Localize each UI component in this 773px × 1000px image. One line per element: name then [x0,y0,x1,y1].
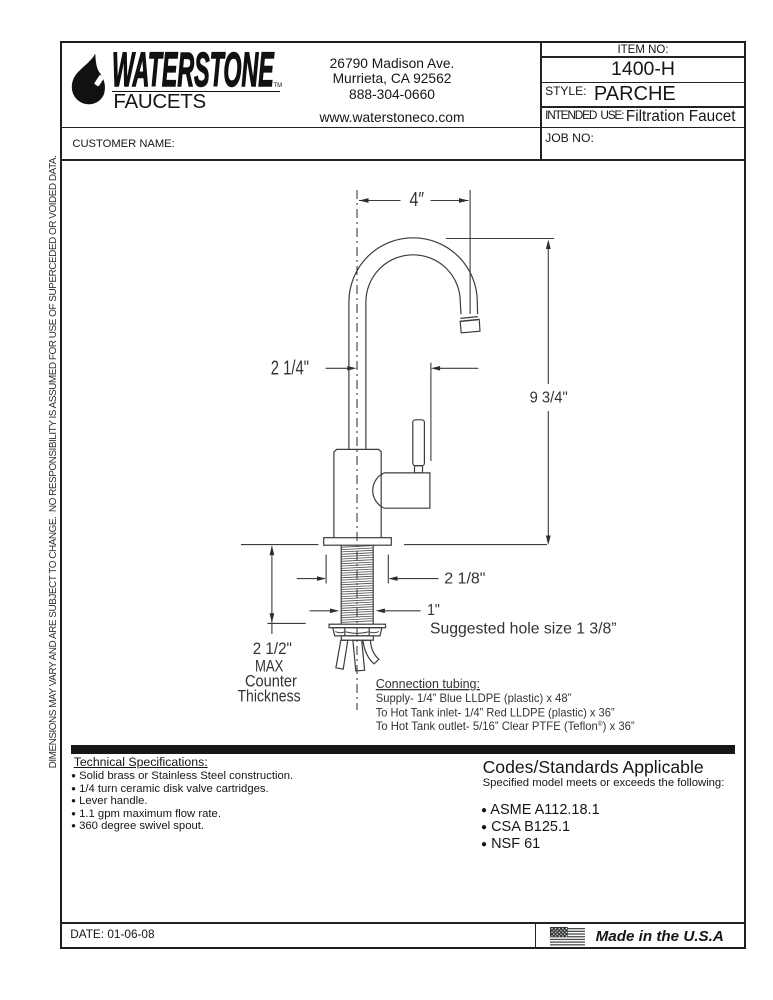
svg-text:Supply- 1/4” Blue LLDPE (plast: Supply- 1/4” Blue LLDPE (plastic) x 48” [376,691,572,705]
svg-text:4″: 4″ [410,189,425,211]
svg-text:9 3/4": 9 3/4" [530,389,568,406]
svg-text:To Hot Tank outlet- 5/16” Clea: To Hot Tank outlet- 5/16” Clear PTFE (Te… [376,719,635,733]
svg-text:2 1/4": 2 1/4" [271,357,309,379]
svg-text:To Hot Tank inlet- 1/4” Red LL: To Hot Tank inlet- 1/4” Red LLDPE (plast… [376,705,615,719]
svg-text:Connection tubing:: Connection tubing: [376,676,480,691]
svg-text:Suggested hole size 1 3/8”: Suggested hole size 1 3/8” [430,620,617,637]
svg-text:1": 1" [427,602,440,619]
svg-text:Thickness: Thickness [238,686,301,705]
svg-text:2 1/8": 2 1/8" [444,571,485,588]
